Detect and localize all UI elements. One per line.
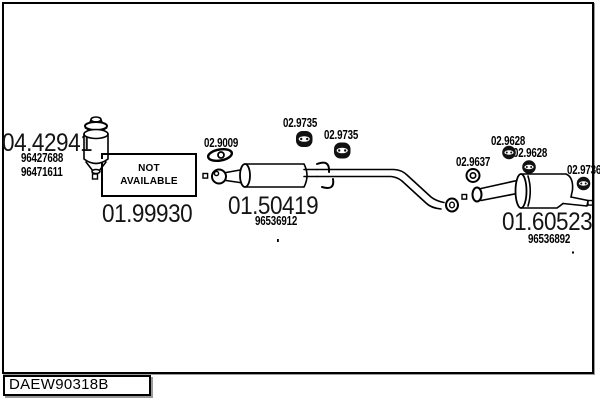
front-flange-icon [212,170,243,184]
rear-inlet-pipe [473,181,518,202]
tail-hanger-icon [577,177,591,191]
intermediate-pipe [317,170,458,212]
diagram-code-box: DAEW90318B [3,375,151,396]
rear-muffler-icon [516,174,589,208]
mid-hanger-1-icon [296,131,313,147]
center-muffler-icon [240,164,317,187]
exhaust-parts-diagram: 04.42941 96427688 96471611 NOT AVAILABLE… [0,0,600,400]
rear-hanger-1-icon [502,146,516,160]
mid-hanger-2-icon [334,143,351,159]
catalyst-icon [84,117,108,179]
rear-gasket-icon [467,169,480,182]
front-gasket-icon [207,147,233,162]
stray-marks [277,239,574,254]
diagram-code: DAEW90318B [5,377,149,393]
clamp-icon [317,163,333,188]
rear-hanger-2-icon [522,160,536,174]
diagram-artwork [0,0,600,400]
